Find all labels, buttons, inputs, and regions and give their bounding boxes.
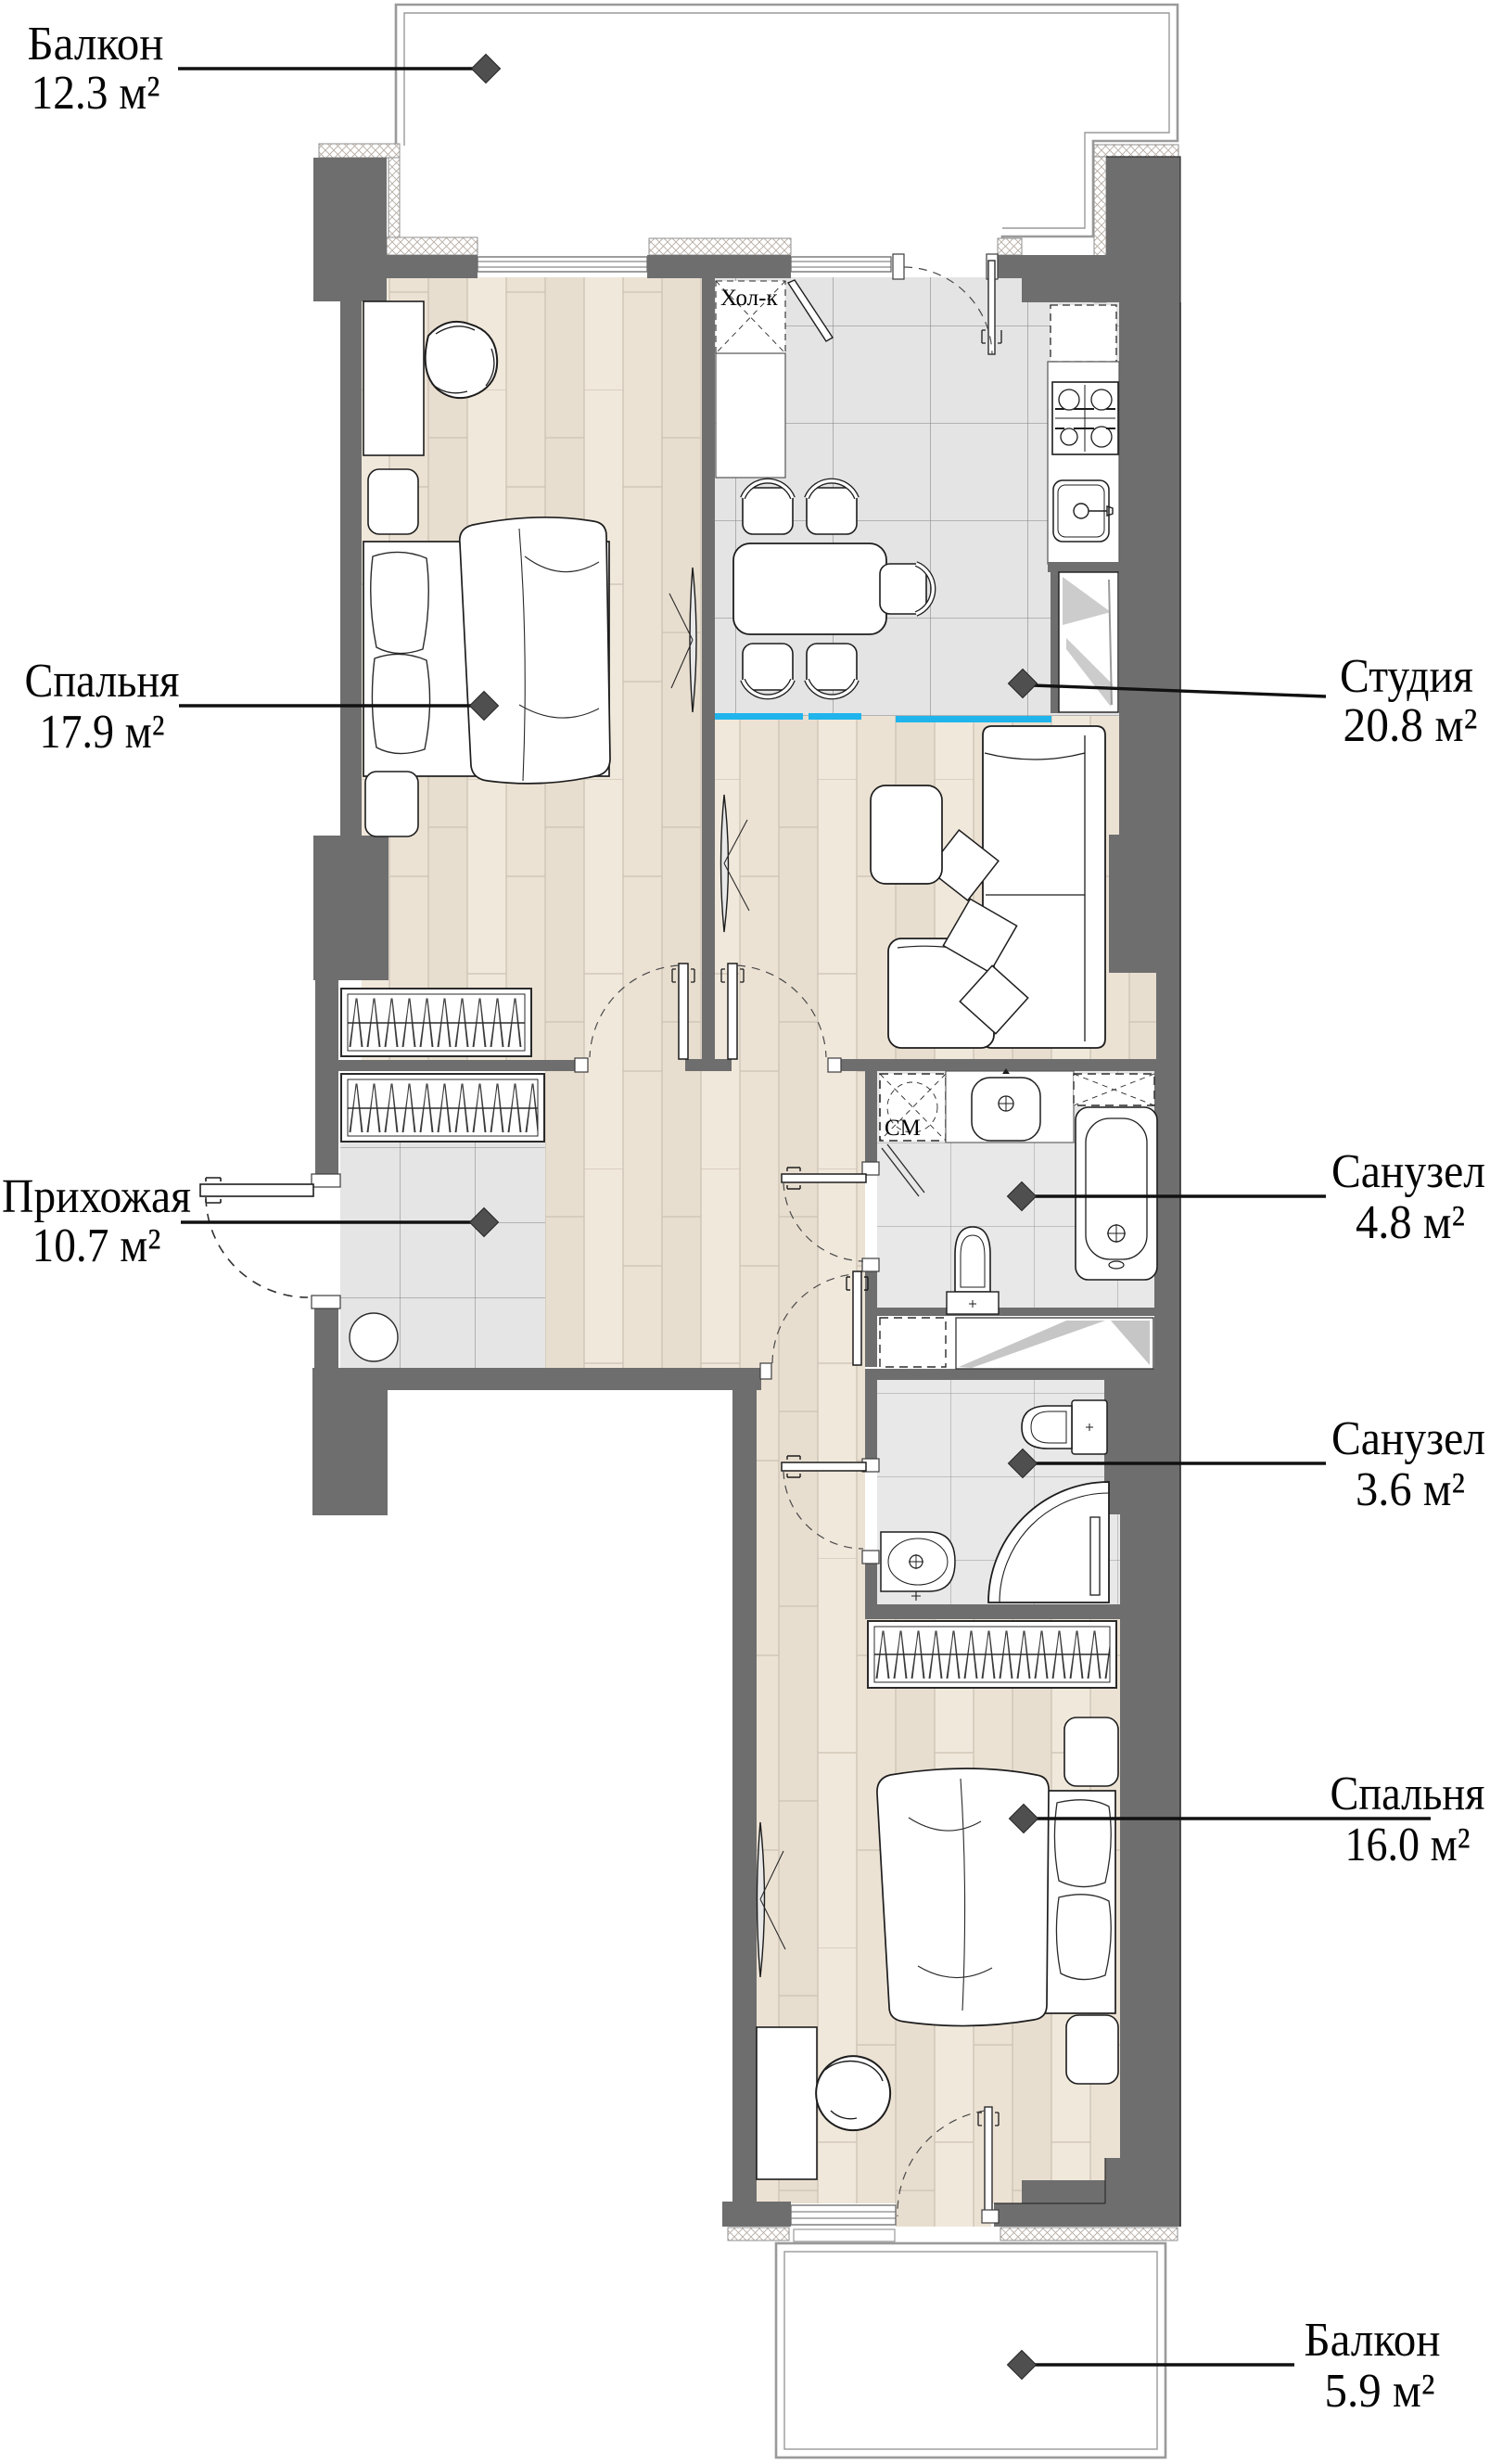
svg-text:5.9 м²: 5.9 м² (1325, 2365, 1435, 2418)
svg-text:16.0 м²: 16.0 м² (1345, 1819, 1471, 1871)
svg-text:20.8 м²: 20.8 м² (1344, 699, 1478, 752)
svg-text:Студия: Студия (1340, 650, 1473, 703)
svg-text:Хол-к: Хол-к (720, 286, 778, 311)
svg-text:Санузел: Санузел (1331, 1145, 1485, 1198)
svg-text:Прихожая: Прихожая (2, 1170, 191, 1223)
svg-text:4.8 м²: 4.8 м² (1356, 1196, 1465, 1249)
svg-text:3.6 м²: 3.6 м² (1356, 1463, 1465, 1516)
svg-text:Балкон: Балкон (1305, 2314, 1441, 2367)
svg-text:10.7 м²: 10.7 м² (32, 1219, 161, 1272)
svg-text:СМ: СМ (885, 1116, 921, 1141)
svg-text:Санузел: Санузел (1331, 1412, 1485, 1465)
svg-text:Балкон: Балкон (28, 18, 164, 70)
svg-text:17.9 м²: 17.9 м² (40, 706, 165, 759)
svg-text:Спальня: Спальня (25, 655, 180, 708)
svg-text:Спальня: Спальня (1331, 1768, 1485, 1820)
svg-text:12.3 м²: 12.3 м² (32, 67, 160, 120)
